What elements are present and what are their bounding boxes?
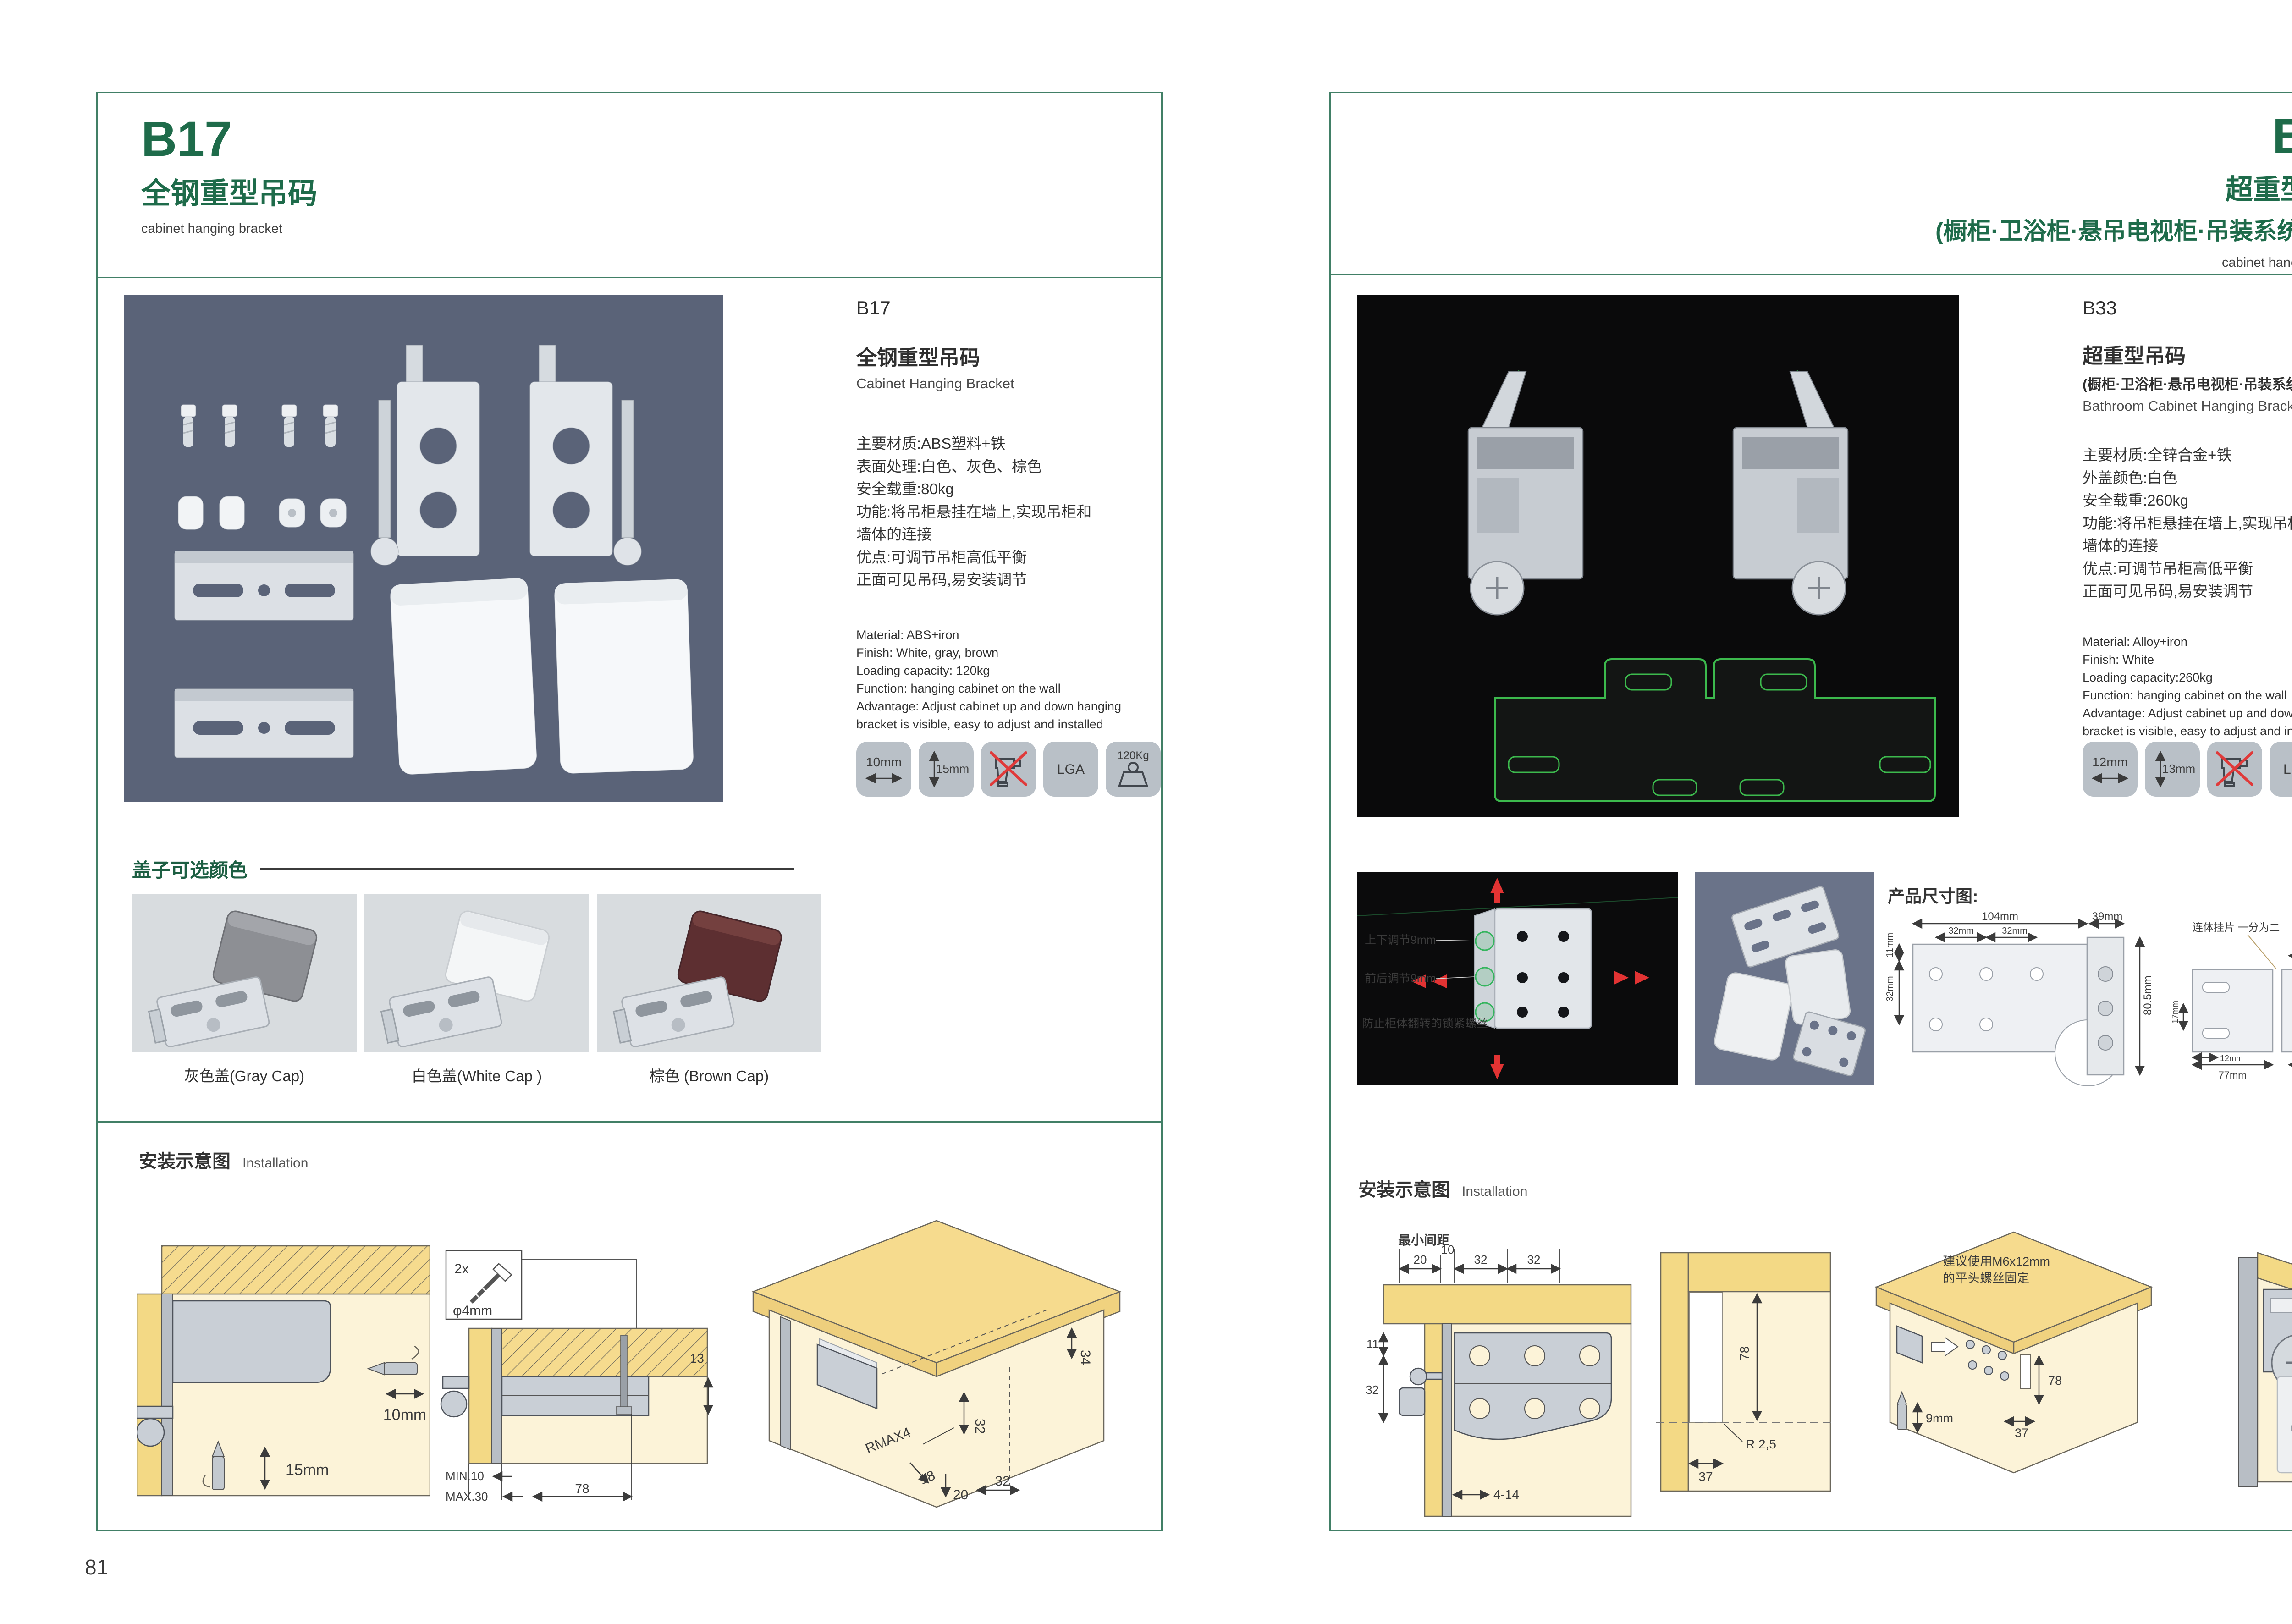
spec-line: Loading capacity: 120kg xyxy=(856,662,1150,680)
install-diagram-section: 建议使用M6x12mm 的平头螺丝固定 78 37 9mm xyxy=(1853,1207,2174,1523)
bracket-hardware-illustration xyxy=(379,976,502,1050)
info-name-cn: 全钢重型吊码 xyxy=(856,341,1150,371)
dim-label: 13 xyxy=(690,1351,704,1365)
dim-label: 9mm xyxy=(1926,1411,1953,1425)
product-title-cn: 超重型吊码 xyxy=(1331,167,2292,207)
icon-label: 120Kg xyxy=(1117,749,1149,762)
dim-label: 32 xyxy=(1474,1253,1488,1266)
install-diagram-section: 78 R 2,5 37 xyxy=(1647,1225,1840,1523)
installation-title-cn: 安装示意图 xyxy=(139,1151,231,1172)
hook-shape xyxy=(137,1406,173,1418)
spec-icons-b33: 12mm 13mm LGA 260Kg xyxy=(2083,742,2292,797)
dim-label: 32 xyxy=(1366,1383,1379,1397)
panel-width-icon: 10mm xyxy=(856,742,911,797)
icon-label: 15mm xyxy=(936,762,969,776)
dimensions-drawing: 104mm 32mm 32mm 39mm 11mm 32mm 80.5mm 连体… xyxy=(1881,910,2292,1088)
dim-label: 12mm xyxy=(2220,1054,2243,1063)
info-code: B17 xyxy=(856,297,1150,319)
annotation-label: 前后调节9mm xyxy=(1365,972,1436,985)
dimensions-heading: 产品尺寸图: xyxy=(1888,882,1978,907)
dim-label: 32mm xyxy=(1885,976,1895,1002)
bracket-hardware-illustration xyxy=(146,976,270,1050)
spec-line: 优点:可调节吊柜高低平衡 xyxy=(2083,557,2292,580)
dim-label: 17mm xyxy=(2171,1001,2180,1024)
spec-icons-b17: 10mm 15mm LGA 120Kg xyxy=(856,742,1161,797)
adjustment-feature-illustration: 上下调节9mm 前后调节9mm 防止柜体翻转的锁紧螺丝 xyxy=(1357,872,1678,1085)
dim-label: 78 xyxy=(1737,1346,1752,1360)
specs-en: Material: ABS+iron Finish: White, gray, … xyxy=(856,626,1150,734)
white-cover xyxy=(2277,1376,2292,1473)
no-drill-icon xyxy=(2207,742,2262,797)
installation-title-en: Installation xyxy=(1462,1184,1527,1199)
spec-line: Material: Alloy+iron xyxy=(2083,633,2292,651)
page-b17: B17 全钢重型吊码 cabinet hanging bracket xyxy=(96,92,1163,1531)
product-photo-b33-illustration xyxy=(1357,295,1959,817)
annotation-label: 防止柜体翻转的锁紧螺丝 xyxy=(1362,1017,1488,1030)
icon-label: LGA xyxy=(2283,762,2292,777)
cap-tile-white xyxy=(364,894,589,1052)
cap-caption-gray: 灰色盖(Gray Cap) xyxy=(132,1064,357,1086)
dim-label: 32mm xyxy=(1948,926,1974,936)
lga-cert-icon: LGA xyxy=(1043,742,1098,797)
product-tagline-en: cabinet hanging bracket xyxy=(141,221,1161,237)
parts-photo xyxy=(1695,872,1874,1085)
install-diagram-section xyxy=(2225,1225,2292,1523)
icon-label: 10mm xyxy=(866,755,902,769)
cap-color-captions: 灰色盖(Gray Cap) 白色盖(White Cap ) 棕色 (Brown … xyxy=(132,1064,821,1086)
page-b33: B33 超重型吊码 (橱柜·卫浴柜·悬吊电视柜·吊装系统 专用) cabinet… xyxy=(1329,92,2292,1531)
spec-line: 外盖颜色:白色 xyxy=(2083,467,2292,490)
dim-label: 15mm xyxy=(286,1461,329,1479)
spec-line: Advantage: Adjust cabinet up and down ha… xyxy=(2083,705,2292,722)
install-note: 建议使用M6x12mm xyxy=(1943,1255,2050,1268)
dim-label: 77mm xyxy=(2218,1069,2246,1081)
specs-en: Material: Alloy+iron Finish: White Loadi… xyxy=(2083,633,2292,741)
panel-height-icon: 13mm xyxy=(2145,742,2200,797)
white-cap-illustration xyxy=(390,578,537,775)
spec-line: 正面可见吊码,易安装调节 xyxy=(2083,580,2292,603)
icon-label: LGA xyxy=(1057,762,1085,777)
install-diagram-section: 最小间距 20 10 32 32 11 32 4-14 xyxy=(1356,1225,1636,1523)
spec-line: 正面可见吊码,易安装调节 xyxy=(856,568,1150,591)
dim-label: 78 xyxy=(575,1481,589,1496)
product-photo-b17 xyxy=(124,295,723,802)
wall-rail-illustration xyxy=(175,551,353,620)
dim-label: MAX.30 xyxy=(446,1490,488,1503)
spec-line: 墙体的连接 xyxy=(856,523,1150,546)
screw-qty-label: 2x xyxy=(454,1261,469,1277)
dim-label: 11mm xyxy=(1885,933,1895,958)
info-code: B33 xyxy=(2083,297,2292,319)
product-subtitle-cn: (橱柜·卫浴柜·悬吊电视柜·吊装系统 专用) xyxy=(1331,212,2292,246)
installation-heading: 安装示意图Installation xyxy=(139,1146,308,1173)
heading-rule xyxy=(260,868,794,870)
lga-cert-icon: LGA xyxy=(2270,742,2292,797)
dim-label: 32 xyxy=(995,1474,1010,1489)
spec-line: 功能:将吊柜悬挂在墙上,实现吊柜和 xyxy=(2083,512,2292,535)
dim-label: R 2,5 xyxy=(1746,1437,1776,1451)
info-name-cn: 超重型吊码 xyxy=(2083,339,2292,369)
routed-slot xyxy=(1689,1293,1723,1422)
spec-line: Advantage: Adjust cabinet up and down ha… xyxy=(856,698,1150,716)
adjust-screw-highlights xyxy=(1476,932,1494,1021)
specs-cn: 主要材质:ABS塑料+铁 表面处理:白色、灰色、棕色 安全载重:80kg 功能:… xyxy=(856,432,1150,591)
cap-caption-brown: 棕色 (Brown Cap) xyxy=(597,1064,821,1086)
dim-label: 39mm xyxy=(2092,910,2123,923)
panel-width-icon: 12mm xyxy=(2083,742,2138,797)
install-diagram-section: 10mm 15mm xyxy=(137,1225,430,1514)
product-code-heading: B17 xyxy=(141,114,1161,164)
spec-line: 功能:将吊柜悬挂在墙上,实现吊柜和 xyxy=(856,501,1150,523)
bracket-hardware-illustration xyxy=(611,976,734,1050)
page-b33-header: B33 超重型吊码 (橱柜·卫浴柜·悬吊电视柜·吊装系统 专用) cabinet… xyxy=(1331,93,2292,275)
white-cap-part xyxy=(1785,949,1851,1025)
spec-line: Function: hanging cabinet on the wall xyxy=(856,680,1150,698)
spec-line: 墙体的连接 xyxy=(2083,534,2292,557)
install-diagram-section: 2x φ4mm 13 MIN.10 MAX.30 78 xyxy=(439,1225,719,1514)
installation-title-en: Installation xyxy=(242,1156,308,1171)
spec-line: 安全载重:80kg xyxy=(856,478,1150,501)
screw-dia-label: φ4mm xyxy=(453,1303,492,1318)
spec-line: 安全载重:260kg xyxy=(2083,489,2292,512)
dim-note: 连体挂片 一分为二 xyxy=(2193,921,2280,933)
cap-colors-title: 盖子可选颜色 xyxy=(132,855,248,883)
bracket-dimension-figure: 104mm 32mm 32mm 39mm 11mm 32mm 80.5mm xyxy=(1885,910,2154,1086)
installation-title-cn: 安装示意图 xyxy=(1358,1180,1450,1200)
parts-photo-illustration xyxy=(1695,872,1874,1085)
dim-label: 20 xyxy=(953,1487,968,1503)
icon-label: 12mm xyxy=(2092,755,2128,769)
no-drill-icon xyxy=(981,742,1036,797)
page-number-left: 81 xyxy=(85,1555,108,1580)
bracket-plate xyxy=(1495,909,1591,1028)
product-photo-b17-illustration xyxy=(124,295,723,802)
spec-line: 优点:可调节吊柜高低平衡 xyxy=(856,546,1150,569)
cap-caption-white: 白色盖(White Cap ) xyxy=(364,1064,589,1086)
product-title-cn: 全钢重型吊码 xyxy=(141,170,1161,212)
page-b17-header: B17 全钢重型吊码 cabinet hanging bracket xyxy=(98,93,1161,278)
wall-rail-illustration xyxy=(175,689,353,758)
cap-tile-brown xyxy=(597,894,821,1052)
spec-line: Function: hanging cabinet on the wall xyxy=(2083,687,2292,705)
cap-color-tiles xyxy=(132,894,821,1052)
dim-label: 104mm xyxy=(1982,910,2018,923)
bracket-shape xyxy=(173,1301,331,1382)
spec-line: Loading capacity:260kg xyxy=(2083,669,2292,687)
info-name-en: Cabinet Hanging Bracket xyxy=(856,375,1150,392)
dim-label: 11 xyxy=(1366,1337,1379,1351)
hook-shape xyxy=(443,1376,469,1388)
spec-line: 主要材质:全锌合金+铁 xyxy=(2083,444,2292,467)
dim-label: 37 xyxy=(1698,1470,1713,1484)
spec-line: Finish: White, gray, brown xyxy=(856,644,1150,662)
dim-label: 32 xyxy=(1527,1253,1541,1266)
section-divider xyxy=(98,1121,1161,1123)
spec-line: Material: ABS+iron xyxy=(856,626,1150,644)
dim-label: 4-14 xyxy=(1493,1487,1519,1502)
load-capacity-icon: 120Kg xyxy=(1106,742,1161,797)
info-name-sub: (橱柜·卫浴柜·悬吊电视柜·吊装系统 专用) xyxy=(2083,373,2292,393)
spec-line: 表面处理:白色、灰色、棕色 xyxy=(856,455,1150,478)
adjustment-feature-photo: 上下调节9mm 前后调节9mm 防止柜体翻转的锁紧螺丝 xyxy=(1357,872,1678,1085)
spec-line: bracket is visible, easy to adjust and i… xyxy=(856,716,1150,733)
catalog-spread: { "brand": {"green": "#1e6b4a", "border"… xyxy=(0,0,2292,1624)
spec-line: bracket is visible, easy to adjust and i… xyxy=(2083,722,2292,740)
white-cap-illustration xyxy=(554,579,694,774)
product-info-b17: B17 全钢重型吊码 Cabinet Hanging Bracket 主要材质:… xyxy=(856,297,1150,733)
installation-heading: 安装示意图Installation xyxy=(1358,1175,1527,1201)
specs-cn: 主要材质:全锌合金+铁 外盖颜色:白色 安全载重:260kg 功能:将吊柜悬挂在… xyxy=(2083,444,2292,603)
hanging-plate-dimension-figure: 连体挂片 一分为二 55mm 39mm 55mm 8mm 63mm 77mm 1… xyxy=(2171,921,2292,1081)
spec-line: Finish: White xyxy=(2083,651,2292,669)
product-tagline-en: cabinet hanging bracket xyxy=(1331,255,2292,270)
product-code-heading: B33 xyxy=(1331,111,2292,161)
dim-label: 32 xyxy=(972,1419,987,1434)
icon-label: 13mm xyxy=(2162,762,2195,776)
install-note: 的平头螺丝固定 xyxy=(1943,1272,2029,1285)
dim-label: 32mm xyxy=(2002,926,2028,936)
annotation-label: 上下调节9mm xyxy=(1365,934,1436,947)
dim-label: 78 xyxy=(2048,1374,2062,1387)
dim-label: 34 xyxy=(1078,1350,1093,1365)
panel-height-icon: 15mm xyxy=(919,742,974,797)
product-photo-b33 xyxy=(1357,295,1959,817)
product-info-b33: B33 超重型吊码 (橱柜·卫浴柜·悬吊电视柜·吊装系统 专用) Bathroo… xyxy=(2083,297,2292,740)
dim-label: 10mm xyxy=(383,1406,426,1424)
cap-tile-gray xyxy=(132,894,357,1052)
spec-line: 主要材质:ABS塑料+铁 xyxy=(856,432,1150,455)
info-name-en: Bathroom Cabinet Hanging Bracket xyxy=(2083,398,2292,414)
cap-colors-heading: 盖子可选颜色 xyxy=(132,855,794,883)
dim-label: MIN.10 xyxy=(446,1469,484,1483)
mount-slot xyxy=(2021,1354,2031,1388)
dim-label: 80.5mm xyxy=(2142,975,2154,1015)
dim-label: 10 xyxy=(1441,1243,1455,1256)
dim-label: 20 xyxy=(1414,1253,1427,1266)
install-diagram-section: 34 32 RMAX4 18 20 32 xyxy=(726,1193,1138,1514)
dim-label: 37 xyxy=(2015,1426,2028,1440)
